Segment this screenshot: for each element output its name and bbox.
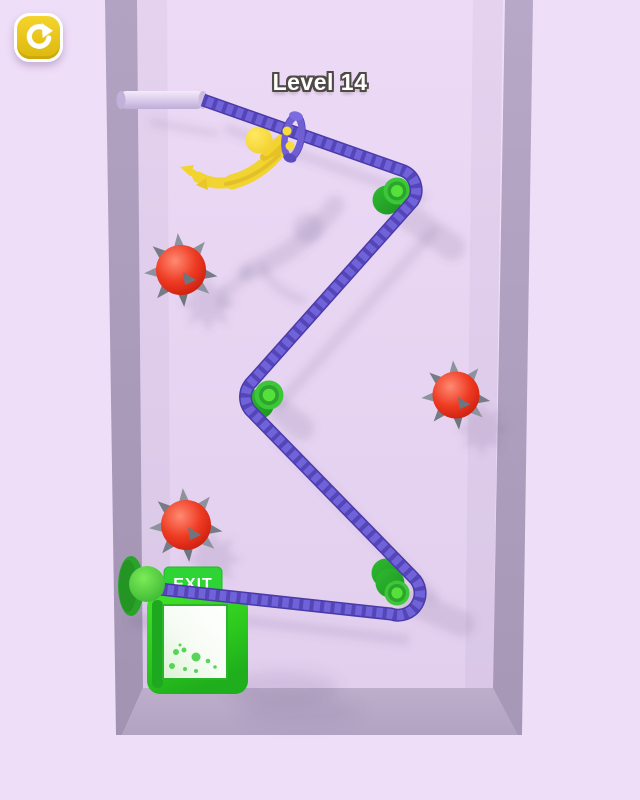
mine-body — [156, 245, 206, 295]
pulley-face-center — [391, 587, 402, 598]
character-hand — [283, 127, 292, 136]
mine-body — [433, 372, 480, 419]
character-hand — [286, 142, 295, 151]
pulley-face-center — [263, 389, 276, 402]
restart-button[interactable] — [14, 13, 63, 62]
level-title: Level 14 — [0, 69, 640, 96]
restart-icon — [23, 22, 54, 53]
wall-peg-dome — [129, 566, 165, 602]
pulley-face-center — [391, 185, 403, 197]
game-screen: EXIT — [0, 0, 640, 800]
character-head — [246, 127, 273, 154]
pulley-shadow — [278, 409, 302, 428]
mine-body — [161, 500, 211, 550]
door-frame-left-bevel — [152, 600, 163, 688]
door-shadow — [238, 698, 362, 726]
level-scene: EXIT — [0, 0, 640, 800]
